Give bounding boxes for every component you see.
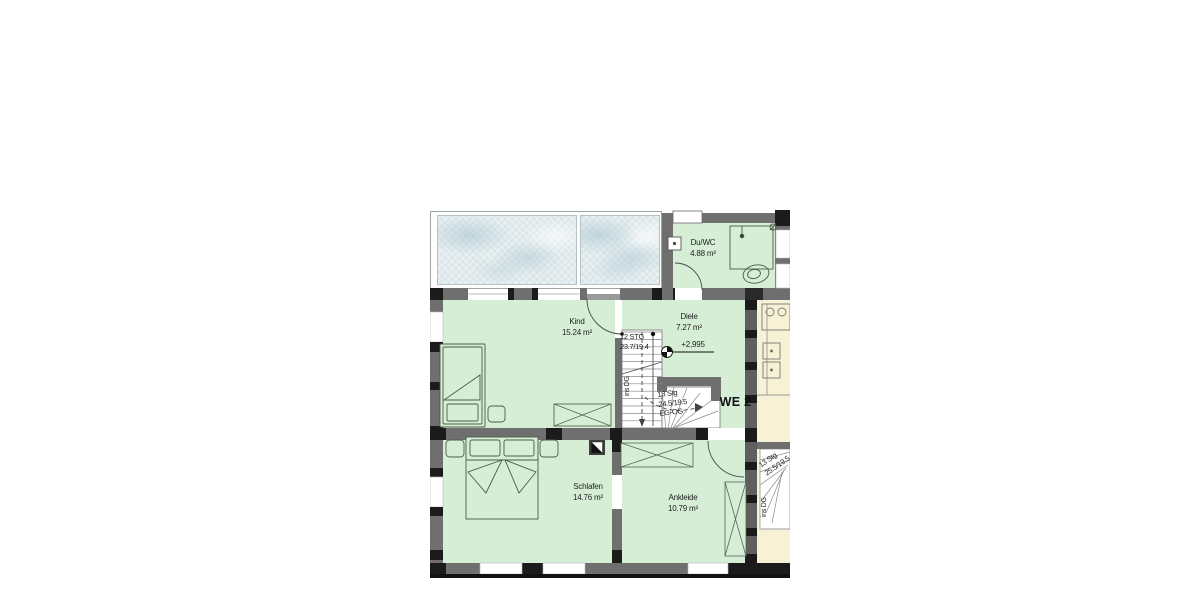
room-area: 7.27 m² [654, 323, 724, 334]
room-area: 10.79 m² [646, 504, 720, 515]
unit-label: WE 2 [713, 397, 758, 408]
room-name: Schlafen [551, 482, 625, 493]
stair-upper-label: 12 STG 23.7/19.4 [620, 332, 662, 351]
stair-dimensions: 23.7/19.4 [620, 342, 662, 352]
shower-head [740, 234, 744, 238]
room-name: Du/WC [668, 238, 738, 249]
room-name: Kind [541, 317, 613, 328]
neighbor-stair-direction: ins DG [760, 477, 770, 517]
room-label-diele: Diele 7.27 m² [654, 312, 724, 333]
room-label-schlafen: Schlafen 14.76 m² [551, 482, 625, 503]
floor-plan-page: Du/WC 4.88 m² Kind 15.24 m² Diele 7.27 m… [0, 0, 1200, 600]
room-area: 14.76 m² [551, 493, 625, 504]
room-name: Diele [654, 312, 724, 323]
stair-upper-direction: ins DG [623, 352, 633, 396]
floor-plan: Du/WC 4.88 m² Kind 15.24 m² Diele 7.27 m… [430, 210, 790, 580]
schlafen-pillow-left [470, 440, 500, 456]
room-label-ankleide: Ankleide 10.79 m² [646, 493, 720, 514]
stair-steps: 12 STG [620, 332, 662, 342]
stair-lower-label: 13 Stg 24.5/19.5 EG-OG [657, 385, 708, 418]
shaft-symbol [589, 440, 605, 455]
room-label-duwc: Du/WC 4.88 m² [668, 238, 738, 259]
room-label-kind: Kind 15.24 m² [541, 317, 613, 338]
schlafen-nightstand-right [540, 440, 558, 457]
schlafen-pillow-right [504, 440, 534, 456]
room-area: 15.24 m² [541, 328, 613, 339]
room-name: Ankleide [646, 493, 720, 504]
kind-bed-pillow [447, 404, 478, 421]
schlafen-nightstand-left [446, 440, 464, 457]
kind-nightstand [488, 406, 505, 422]
level-marker-text: +2,995 [670, 340, 716, 351]
room-area: 4.88 m² [668, 249, 738, 260]
